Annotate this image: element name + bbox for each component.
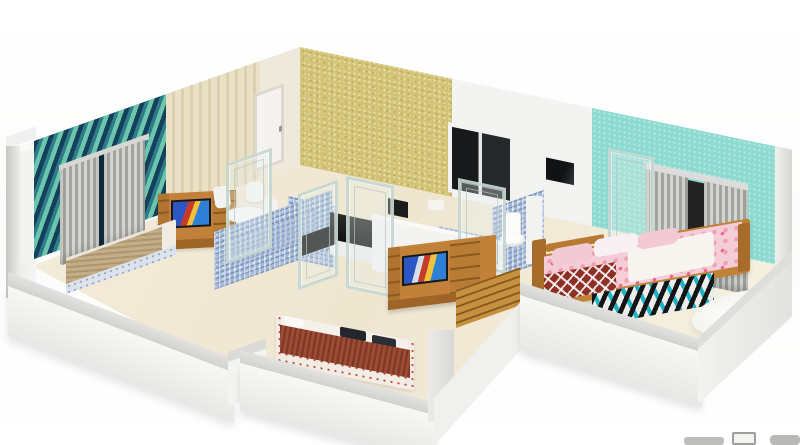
tv-screen: [171, 198, 211, 228]
glass-pane: [354, 186, 386, 289]
kitchen-small-appliance: [428, 200, 444, 210]
pillow: [162, 220, 176, 250]
watermark-shape: [684, 437, 724, 445]
glass-pane: [306, 191, 330, 279]
watermark-shape: [770, 435, 800, 445]
glass-partition: [298, 180, 338, 290]
bed-footboard: [738, 222, 750, 272]
floorplan-render: [0, 0, 800, 445]
glass-pane: [234, 159, 264, 254]
glass-partition: [346, 176, 394, 298]
glass-pane: [616, 158, 646, 244]
glass-partition: [226, 148, 272, 264]
right-wall-endcap: [775, 146, 792, 268]
watermark-shape: [732, 432, 756, 445]
cropped-watermark-logo: [684, 431, 800, 445]
tv-screen: [402, 251, 448, 287]
door-knob: [279, 125, 282, 132]
